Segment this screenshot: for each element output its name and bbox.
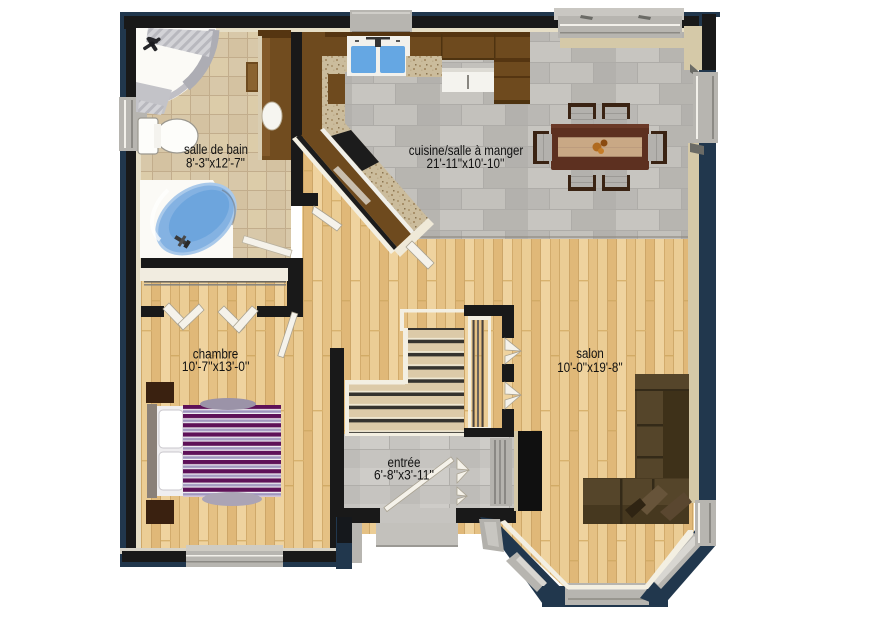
svg-text:10'-0''x19'-8'': 10'-0''x19'-8'' <box>557 360 623 375</box>
svg-text:salon: salon <box>576 346 604 361</box>
svg-text:8'-3''x12'-7'': 8'-3''x12'-7'' <box>186 156 245 171</box>
svg-text:21'-11''x10'-10'': 21'-11''x10'-10'' <box>427 156 505 171</box>
svg-text:10'-7''x13'-0'': 10'-7''x13'-0'' <box>182 359 250 374</box>
svg-text:6'-8''x3'-11'': 6'-8''x3'-11'' <box>374 468 434 483</box>
